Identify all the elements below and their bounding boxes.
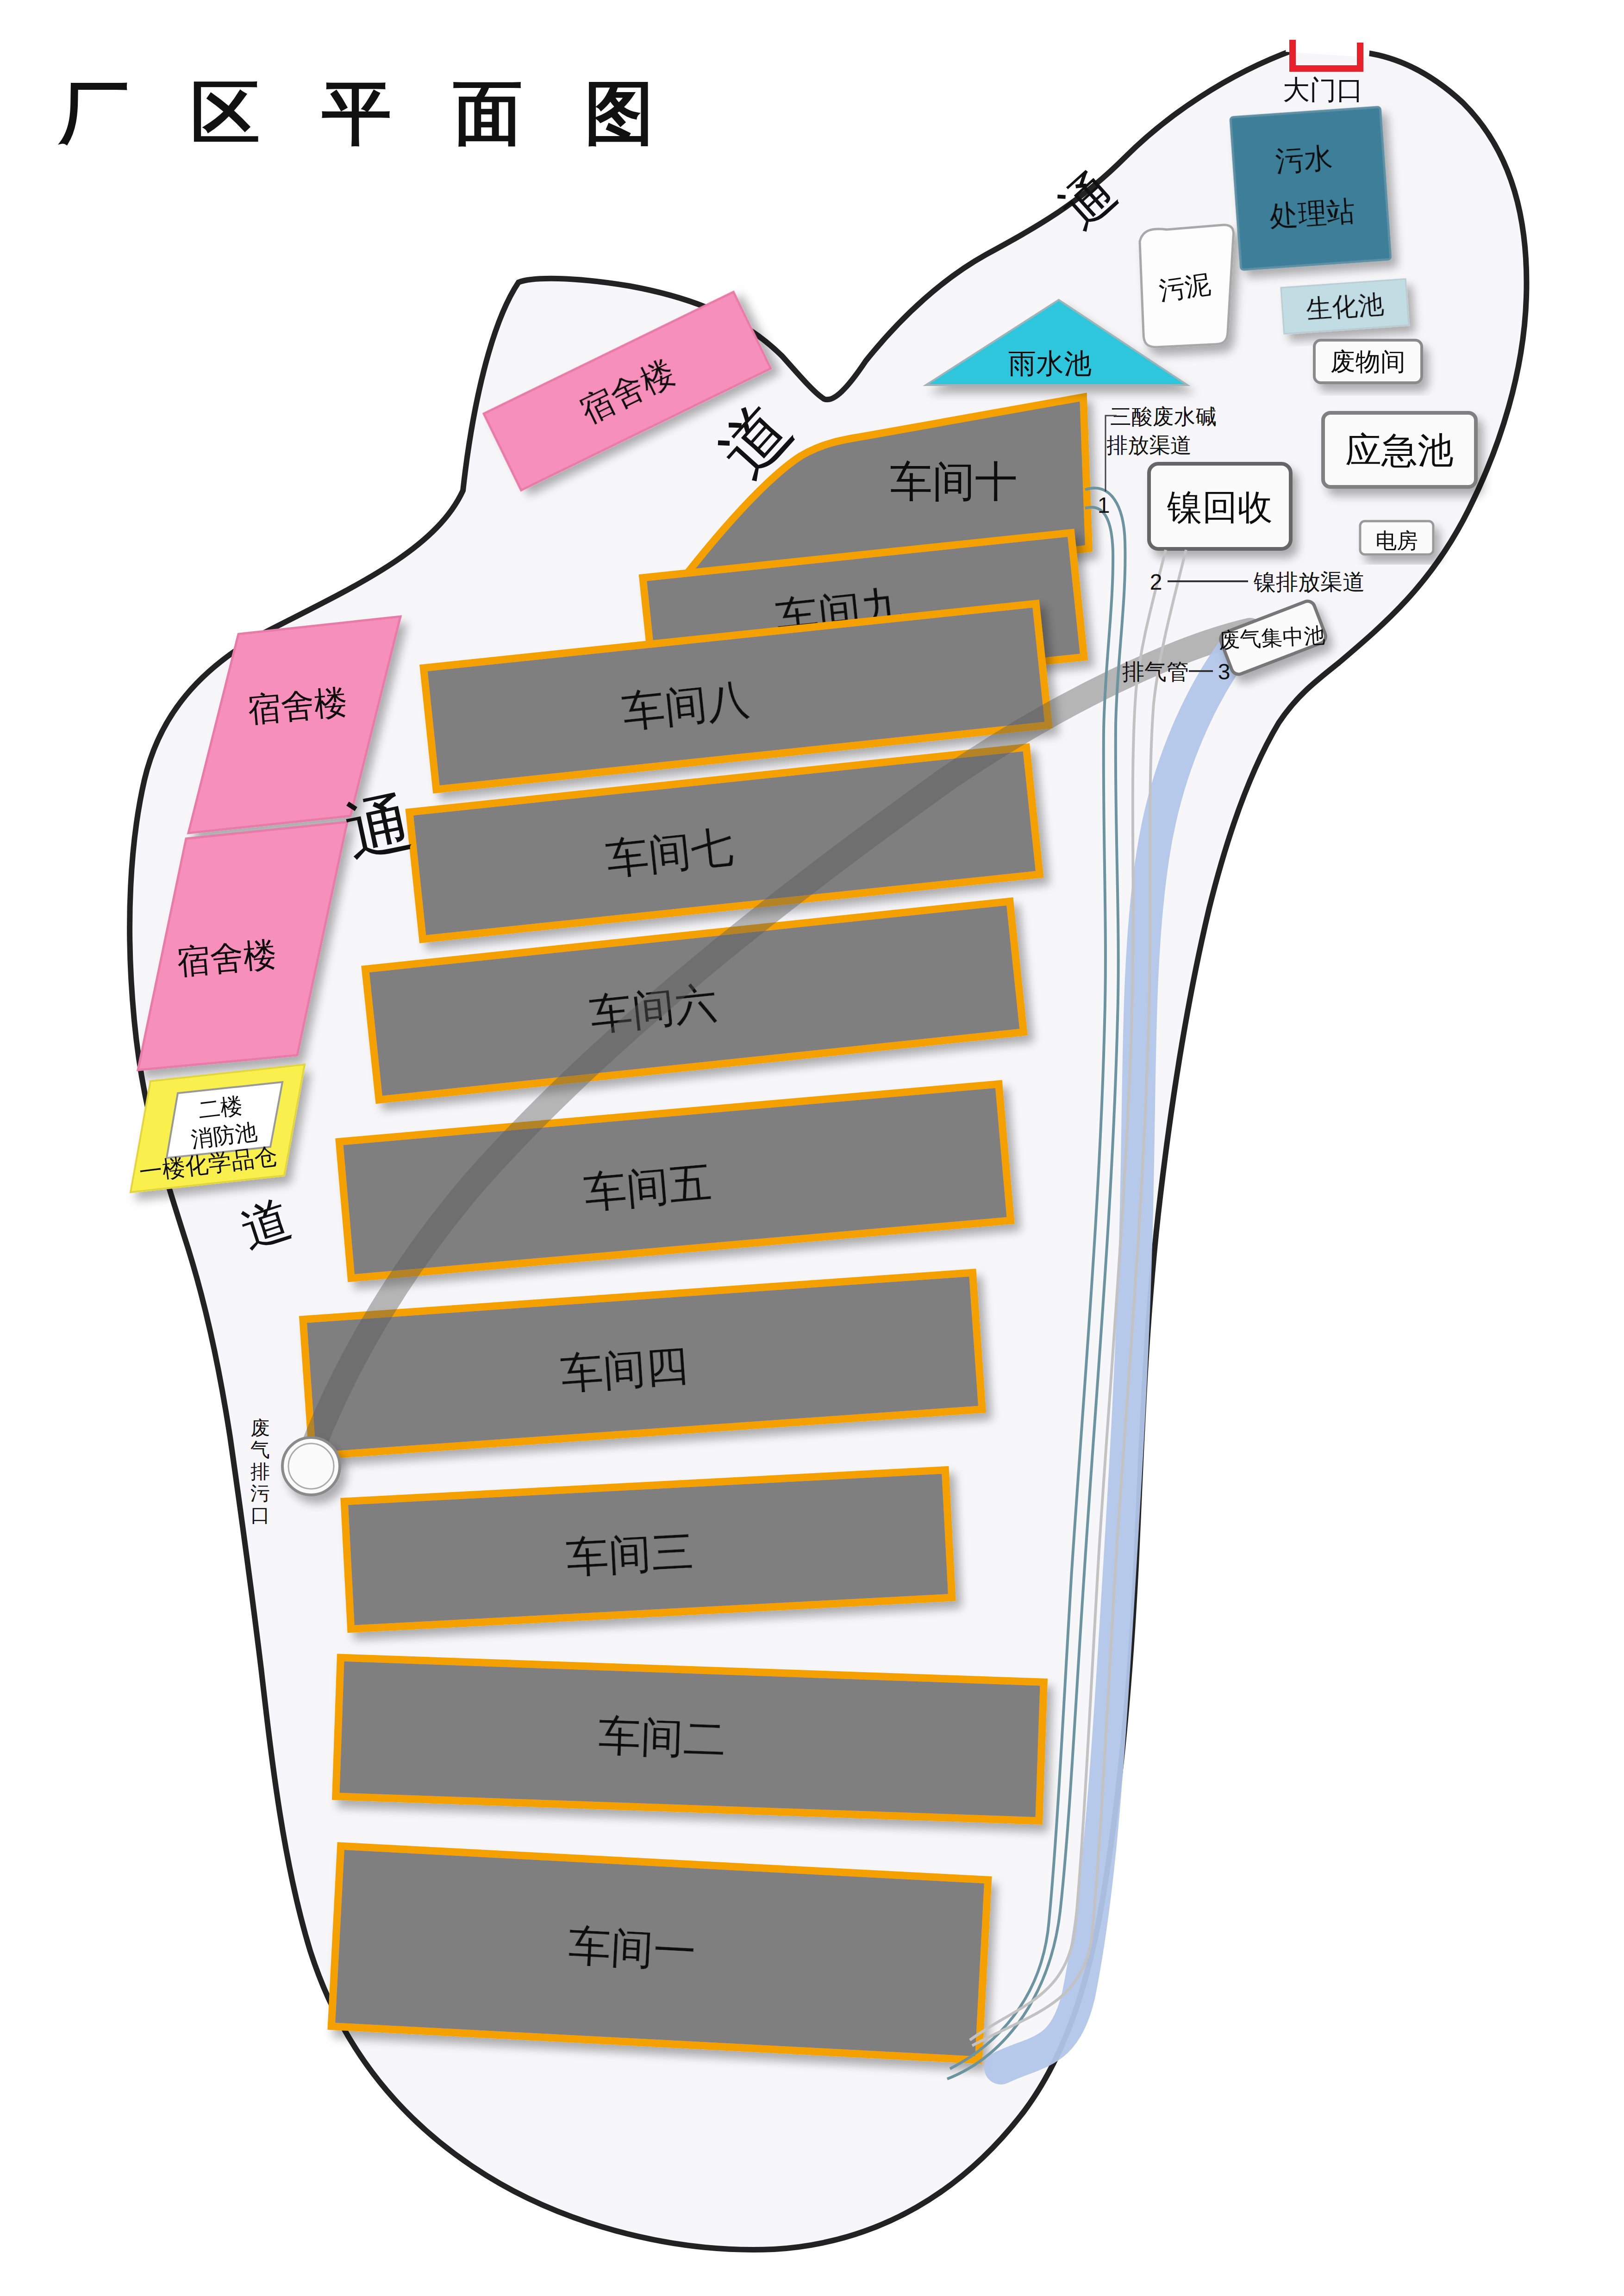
outlet-char-1: 废 [250,1417,270,1439]
acid-channel-label-line1: 三酸废水碱 [1110,404,1217,429]
sludge-area: 污泥 [1140,225,1233,347]
sewage-station-shape [1230,107,1391,270]
acid-channel-label-line2: 排放渠道 [1106,433,1192,457]
workshop-1-label: 车间一 [567,1922,697,1975]
workshop-1: 车间一 [331,1846,988,2060]
waste-gas-outlet-label: 废 气 排 污 口 [250,1417,270,1526]
waste-gas-outlet-circle [282,1437,340,1495]
page-title: 厂 区 平 面 图 [58,74,675,152]
exhaust-pipe-label: 排气管 [1122,660,1189,684]
exhaust-pipe-number: 3 [1218,660,1230,684]
nickel-recovery: 镍回收 [1149,464,1291,549]
biochemical-pool: 生化池 [1281,279,1409,334]
nickel-recovery-label: 镍回收 [1167,487,1273,527]
workshop-3-label: 车间三 [565,1527,695,1581]
sewage-treatment-station: 污水 处理站 [1230,107,1391,270]
acid-channel-number: 1 [1098,493,1110,517]
workshop-10-label: 车间十 [890,458,1018,505]
workshop-2-label: 车间二 [597,1711,726,1763]
emergency-pool: 应急池 [1323,413,1476,487]
factory-plan-canvas: 车间十 车间九 车间八 车间七 车间六 车间五 车间四 车间三 车间二 车间一 [0,0,1624,2296]
power-room: 电房 [1360,521,1433,554]
rainwater-pool-label: 雨水池 [1008,348,1092,379]
outlet-char-4: 污 [250,1482,270,1504]
gate-label: 大门口 [1283,75,1363,105]
sewage-station-label-line2: 处理站 [1268,194,1356,232]
outlet-char-3: 排 [250,1461,270,1482]
sewage-station-label-line1: 污水 [1274,142,1334,177]
waste-room-label: 废物间 [1330,348,1405,375]
workshop-4-label: 车间四 [559,1341,689,1397]
waste-room: 废物间 [1314,340,1422,383]
workshop-3: 车间三 [344,1470,952,1629]
factory-plan-page: 车间十 车间九 车间八 车间七 车间六 车间五 车间四 车间三 车间二 车间一 [0,0,1624,2296]
outlet-char-2: 气 [250,1439,270,1461]
waste-gas-outlet [282,1437,340,1495]
nickel-channel-label: 镍排放渠道 [1253,570,1365,594]
workshop-2: 车间二 [336,1658,1044,1821]
chemical-warehouse: 二楼 消防池 一楼化学品仓 [131,1064,305,1192]
biochemical-pool-label: 生化池 [1305,289,1385,324]
power-room-label: 电房 [1375,529,1418,553]
outlet-char-5: 口 [250,1504,270,1526]
emergency-pool-label: 应急池 [1345,430,1454,471]
nickel-channel-number: 2 [1150,570,1162,594]
